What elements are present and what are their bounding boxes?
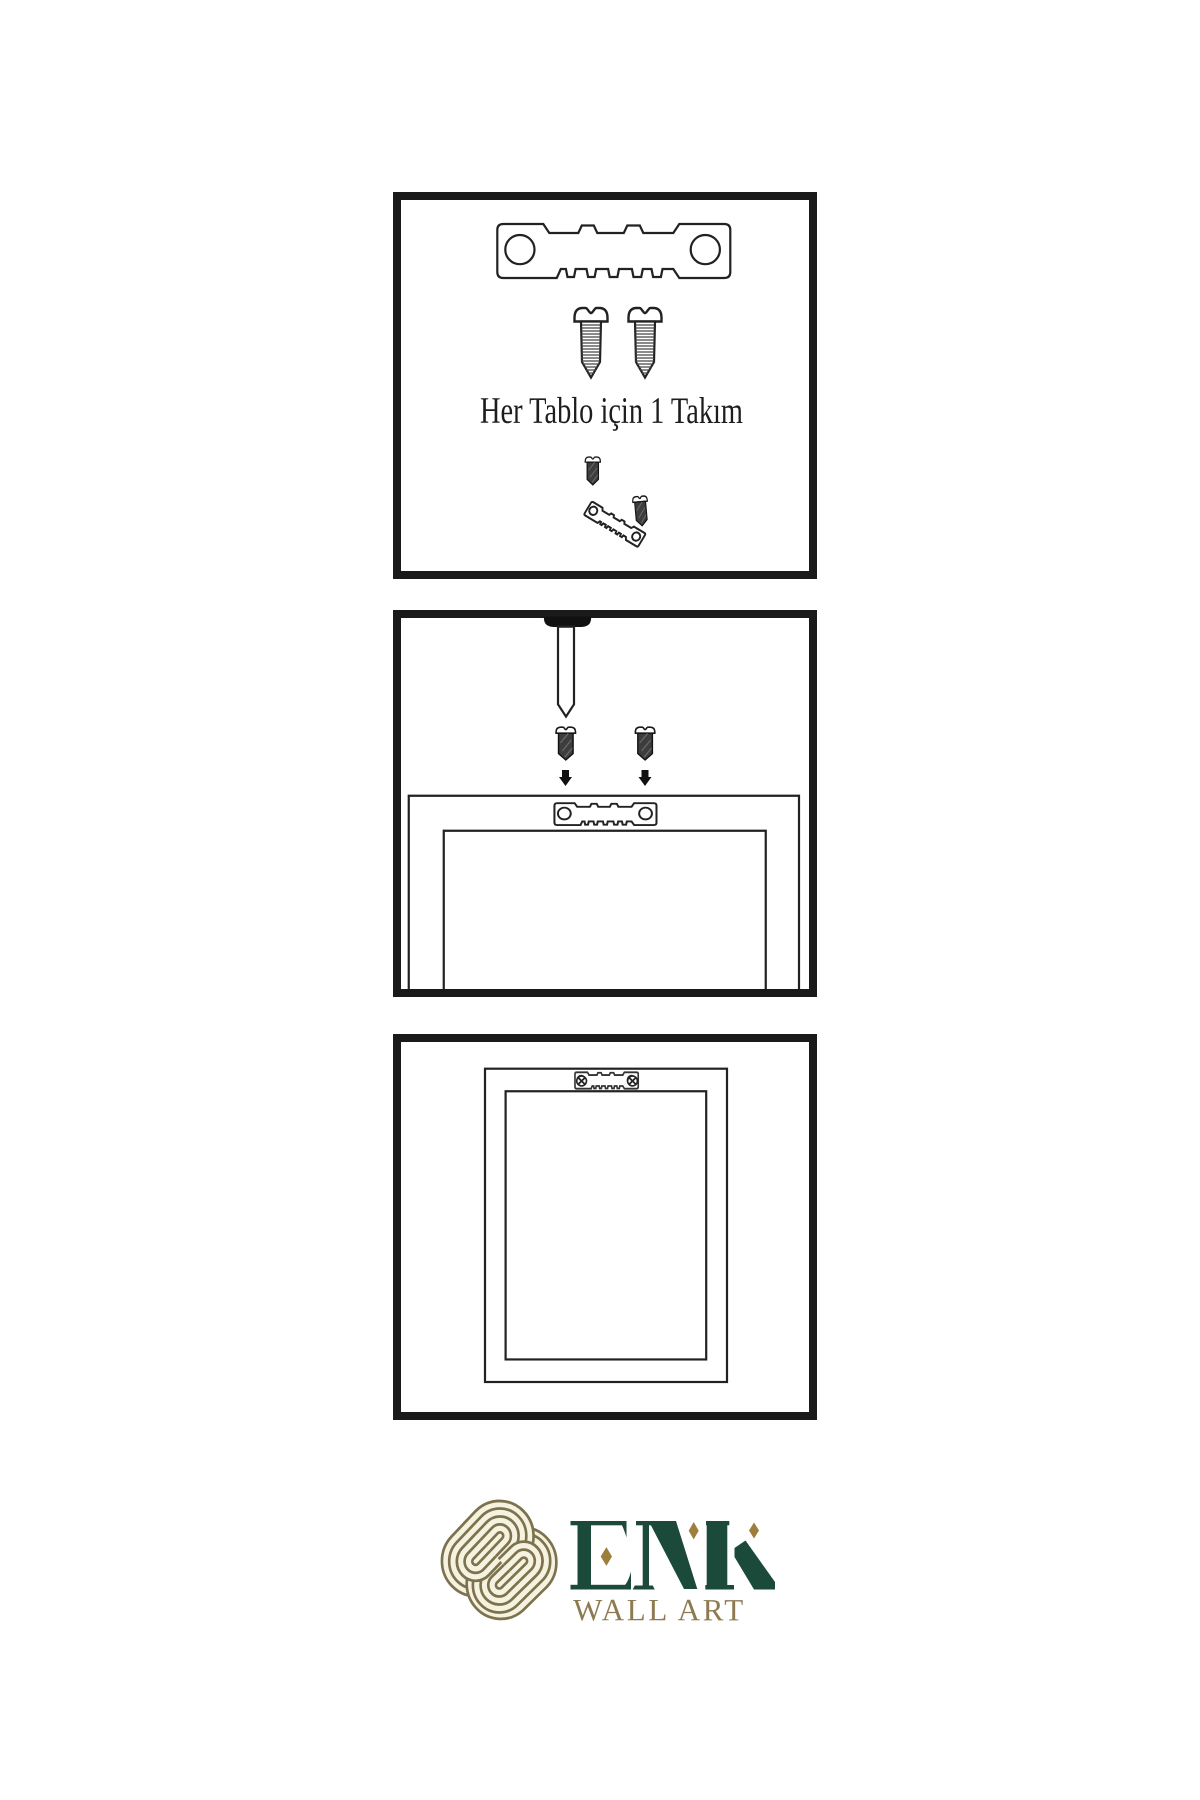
svg-text:Her Tablo için 1 Takım: Her Tablo için 1 Takım [480, 390, 743, 432]
svg-text:WALL ART: WALL ART [573, 1592, 746, 1627]
